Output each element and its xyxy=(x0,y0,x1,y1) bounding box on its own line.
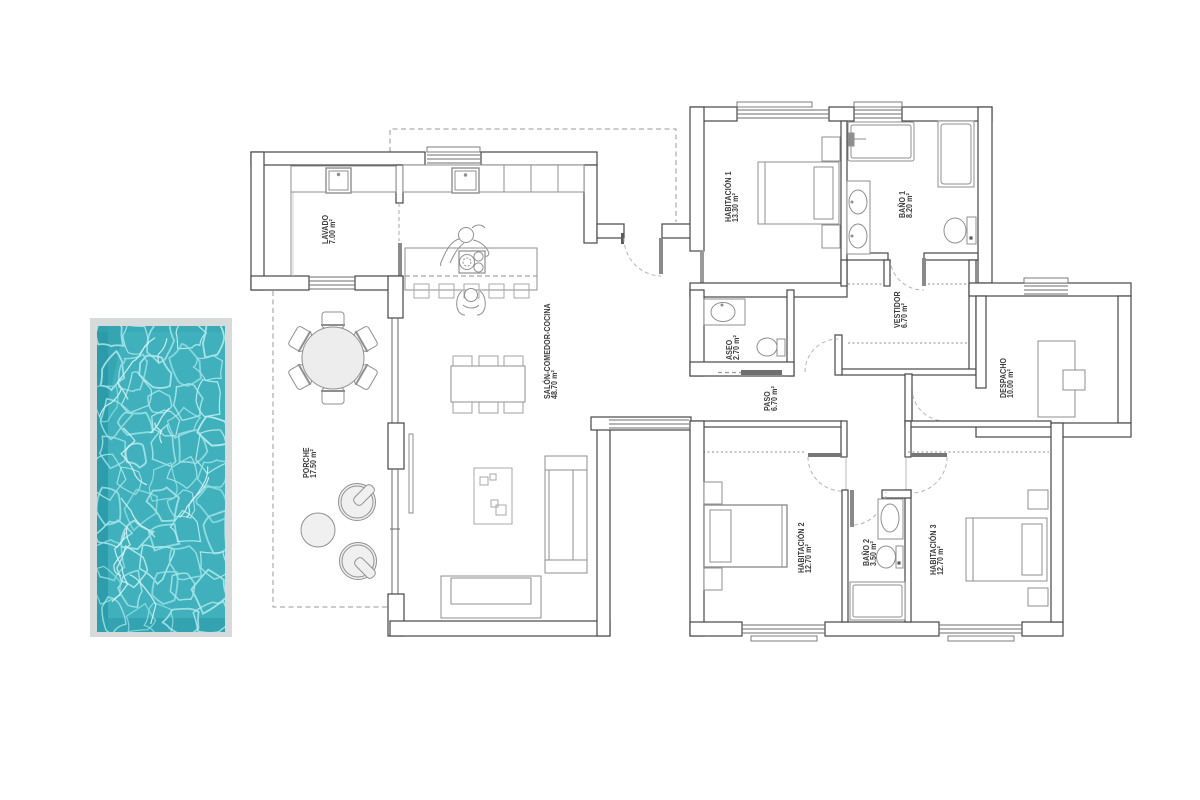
svg-text:10.00 m²: 10.00 m² xyxy=(1005,369,1015,398)
svg-text:7.00 m²: 7.00 m² xyxy=(327,219,337,244)
svg-text:6.70 m²: 6.70 m² xyxy=(769,386,779,411)
svg-text:17.50 m²: 17.50 m² xyxy=(308,449,318,478)
svg-text:6.70 m²: 6.70 m² xyxy=(899,303,909,328)
svg-text:13.30 m²: 13.30 m² xyxy=(730,193,740,222)
svg-text:48.70 m²: 48.70 m² xyxy=(549,370,559,399)
svg-text:2.70 m²: 2.70 m² xyxy=(731,335,741,360)
svg-text:12.70 m²: 12.70 m² xyxy=(803,544,813,573)
svg-text:12.70 m²: 12.70 m² xyxy=(935,546,945,575)
svg-text:8.20 m²: 8.20 m² xyxy=(904,193,914,218)
svg-text:3.50 m²: 3.50 m² xyxy=(868,541,878,566)
